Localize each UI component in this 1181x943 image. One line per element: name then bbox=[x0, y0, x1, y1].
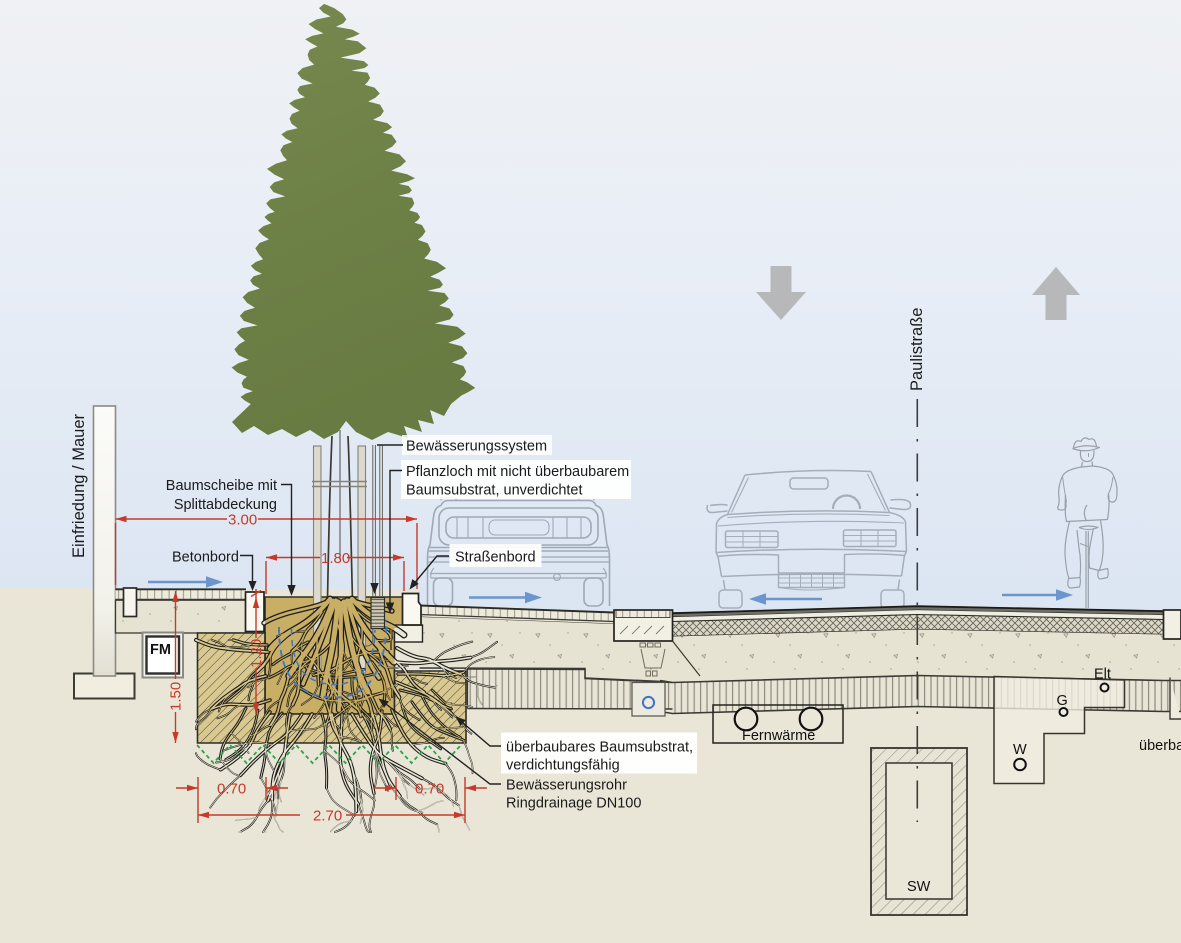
svg-text:überbaubares Baumsubstrat,: überbaubares Baumsubstrat, bbox=[506, 740, 693, 756]
svg-text:überbau: überbau bbox=[1139, 738, 1181, 754]
svg-text:FM: FM bbox=[150, 642, 171, 658]
svg-text:Betonbord: Betonbord bbox=[172, 550, 239, 566]
svg-text:Pflanzloch mit nicht überbauba: Pflanzloch mit nicht überbaubarem bbox=[406, 464, 629, 480]
svg-text:Einfriedung / Mauer: Einfriedung / Mauer bbox=[70, 413, 88, 558]
svg-text:W: W bbox=[1013, 742, 1027, 758]
svg-text:Bewässerungsrohr: Bewässerungsrohr bbox=[506, 778, 627, 794]
svg-text:Paulistraße: Paulistraße bbox=[908, 308, 926, 391]
svg-text:1.20: 1.20 bbox=[248, 639, 265, 668]
svg-text:Ringdrainage DN100: Ringdrainage DN100 bbox=[506, 796, 641, 812]
svg-text:1.50: 1.50 bbox=[168, 682, 185, 711]
svg-text:G: G bbox=[1057, 693, 1068, 709]
svg-text:Elt: Elt bbox=[1094, 667, 1111, 683]
svg-text:0.70: 0.70 bbox=[415, 781, 444, 798]
svg-text:Bewässerungssystem: Bewässerungssystem bbox=[406, 439, 547, 455]
svg-text:0.70: 0.70 bbox=[217, 781, 246, 798]
svg-text:3.00: 3.00 bbox=[228, 512, 257, 529]
svg-text:Straßenbord: Straßenbord bbox=[455, 550, 536, 566]
svg-text:SW: SW bbox=[907, 879, 931, 895]
svg-text:Fernwärme: Fernwärme bbox=[742, 728, 815, 744]
svg-text:2.70: 2.70 bbox=[313, 808, 342, 825]
svg-text:Baumscheibe mit: Baumscheibe mit bbox=[166, 478, 277, 494]
svg-text:Baumsubstrat, unverdichtet: Baumsubstrat, unverdichtet bbox=[406, 483, 583, 499]
svg-text:verdichtungsfähig: verdichtungsfähig bbox=[506, 758, 620, 774]
svg-text:Splittabdeckung: Splittabdeckung bbox=[174, 497, 277, 513]
svg-text:1.80: 1.80 bbox=[321, 550, 350, 567]
